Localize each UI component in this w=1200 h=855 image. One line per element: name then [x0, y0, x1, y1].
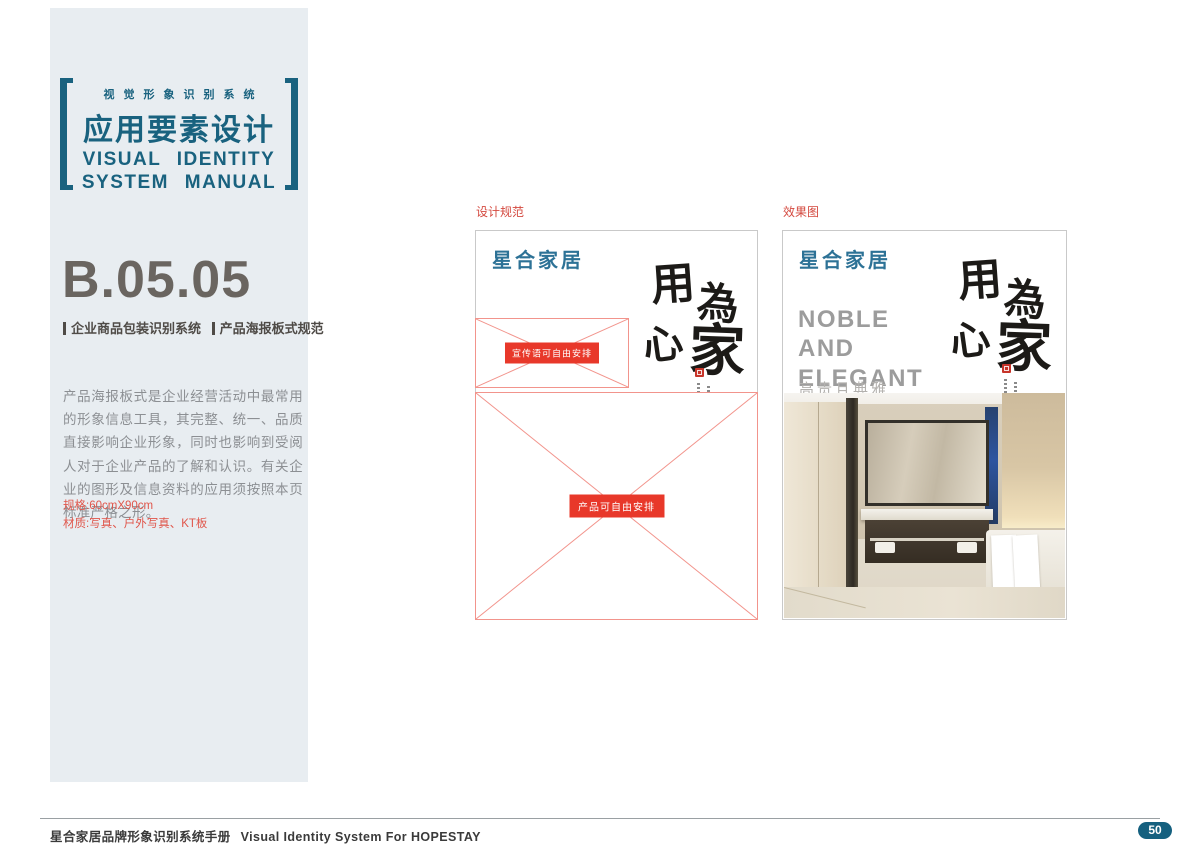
manual-title-block: 视觉形象识别系统 应用要素设计 VISUAL IDENTITY SYSTEM M…: [60, 76, 298, 194]
manual-subtitle-cn: 视觉形象识别系统: [60, 86, 298, 102]
slogan-placeholder-box: 宣传语可自由安排: [475, 318, 629, 388]
seal-stamp-icon: [695, 368, 704, 377]
spec-size: 规格:60cmX90cm: [63, 498, 303, 516]
slogan-placeholder-tag: 宣传语可自由安排: [505, 343, 599, 364]
photo-door-frame: [846, 398, 859, 592]
photo-mirror: [865, 420, 989, 506]
headline-line: AND: [798, 334, 923, 363]
design-spec-panel: 星合家居 用 心 為 家 宣传语可自由安排 产品可自由安排: [475, 230, 758, 619]
manual-title-cn: 应用要素设计: [60, 105, 298, 149]
calligraphy-char: 心: [640, 322, 685, 367]
section-subcategory: 产品海报板式规范: [220, 321, 324, 336]
spec-material: 材质:写真、户外写真、KT板: [63, 516, 303, 534]
product-placeholder-box: 产品可自由安排: [475, 392, 758, 620]
calligraphy-char: 用: [957, 258, 1004, 305]
manual-title-en-line1: VISUAL IDENTITY: [60, 149, 298, 172]
bathroom-photo: [784, 393, 1065, 618]
calligraphy-char: 用: [650, 262, 697, 309]
brand-logo: 星合家居: [799, 244, 891, 273]
photo-towel: [875, 542, 895, 553]
bracket-right-icon: [285, 78, 298, 190]
photo-closet: [784, 402, 846, 587]
photo-floor: [784, 587, 1065, 619]
brand-logo: 星合家居: [492, 244, 584, 273]
photo-shelf: [870, 538, 984, 541]
effect-panel-label: 效果图: [783, 203, 819, 220]
photo-vanity-cabinet: [865, 520, 989, 563]
sidebar: 视觉形象识别系统 应用要素设计 VISUAL IDENTITY SYSTEM M…: [50, 8, 308, 782]
calligraphy-artwork: 用 心 為 家: [954, 259, 1058, 409]
page-number-badge: 50: [1138, 822, 1172, 839]
photo-stone-wall: [1002, 393, 1065, 528]
manual-title-en-line2: SYSTEM MANUAL: [60, 172, 298, 195]
footer-caption-cn: 星合家居品牌形象识别系统手册: [50, 830, 231, 844]
footer-divider: [40, 818, 1160, 819]
footer-caption: 星合家居品牌形象识别系统手册Visual Identity System For…: [50, 826, 481, 845]
section-category: 企业商品包装识别系统: [71, 321, 201, 336]
section-categories: 企业商品包装识别系统 产品海报板式规范: [63, 318, 303, 337]
spec-block: 规格:60cmX90cm 材质:写真、户外写真、KT板: [63, 498, 303, 534]
headline-line: NOBLE: [798, 305, 923, 334]
calligraphy-char: 心: [947, 318, 992, 363]
calligraphy-artwork: 用 心 為 家: [647, 263, 751, 413]
effect-sample-panel: 星合家居 NOBLE AND ELEGANT 高贵且典雅 用 心 為 家: [782, 230, 1067, 620]
manual-page: 视觉形象识别系统 应用要素设计 VISUAL IDENTITY SYSTEM M…: [0, 0, 1200, 855]
photo-vanity-counter: [861, 509, 993, 520]
section-code: B.05.05: [62, 250, 251, 310]
bracket-left-icon: [60, 78, 73, 190]
photo-towel: [957, 542, 977, 553]
design-panel-label: 设计规范: [476, 203, 524, 220]
category-divider-bar: [212, 322, 215, 335]
category-divider-bar: [63, 322, 66, 335]
product-placeholder-tag: 产品可自由安排: [569, 495, 664, 518]
footer-caption-en: Visual Identity System For HOPESTAY: [241, 830, 481, 844]
photo-mirror-glass: [868, 423, 986, 503]
seal-stamp-icon: [1002, 364, 1011, 373]
